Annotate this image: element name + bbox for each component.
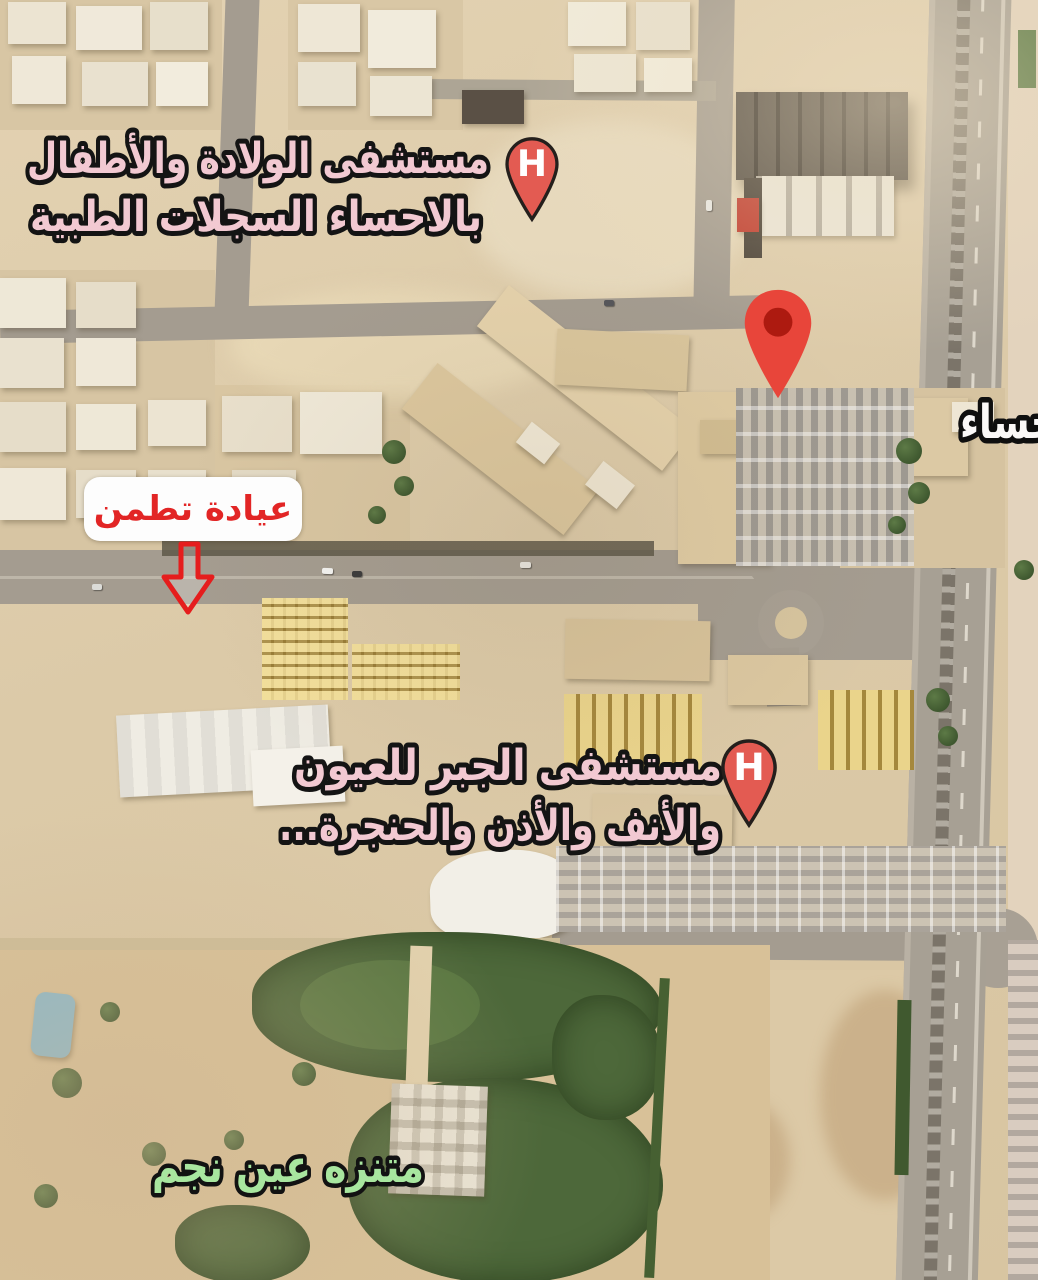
hospital-right-label-line3: الأحساء bbox=[960, 393, 1038, 450]
hospital-top-label: مستشفى الولادة والأطفال بالاحساء السجلات… bbox=[6, 118, 506, 258]
tree bbox=[938, 726, 958, 746]
tree bbox=[292, 1062, 316, 1086]
building bbox=[76, 6, 142, 50]
tree bbox=[926, 688, 950, 712]
car bbox=[604, 300, 614, 306]
building bbox=[370, 76, 432, 116]
pin-inner-dot bbox=[764, 308, 793, 337]
parking-strip bbox=[1008, 940, 1038, 1280]
hospital-jabr-label-line2: والأنف والأذن والحنجرة... bbox=[279, 799, 721, 851]
hospital-right-label: شفى الولادة ال بمحافظة الأحساء bbox=[798, 255, 1038, 465]
pin-letter: H bbox=[733, 745, 765, 789]
building bbox=[0, 402, 66, 452]
car bbox=[706, 200, 712, 211]
building bbox=[298, 62, 356, 106]
tree bbox=[382, 440, 406, 464]
rooftop-unit bbox=[585, 461, 635, 509]
park-label-text: متنزه عين نجم bbox=[152, 1140, 424, 1193]
road-shadow bbox=[162, 541, 654, 556]
building bbox=[368, 10, 436, 68]
highway bbox=[895, 0, 1012, 1280]
market-stalls bbox=[352, 644, 460, 700]
park-trees bbox=[175, 1205, 310, 1280]
building bbox=[756, 176, 894, 236]
satellite-map: مستشفى الولادة والأطفال بالاحساء السجلات… bbox=[0, 0, 1038, 1280]
tree bbox=[888, 516, 906, 534]
building bbox=[76, 338, 136, 386]
building bbox=[728, 655, 808, 705]
building bbox=[76, 282, 136, 328]
dark-warehouse-complex bbox=[736, 92, 908, 180]
building bbox=[8, 2, 66, 44]
building bbox=[0, 468, 66, 520]
hospital-building bbox=[555, 329, 690, 392]
hospital-pin-jabr[interactable]: H bbox=[720, 738, 778, 828]
building bbox=[0, 338, 64, 388]
pin-letter: H bbox=[517, 143, 547, 185]
building bbox=[568, 2, 626, 46]
car bbox=[352, 571, 362, 577]
tree bbox=[394, 476, 414, 496]
car bbox=[520, 562, 531, 568]
hospital-jabr-label: مستشفى الجبر للعيون والأنف والأذن والحنج… bbox=[268, 722, 788, 862]
building bbox=[574, 54, 636, 92]
building bbox=[76, 404, 136, 450]
building bbox=[300, 392, 382, 454]
pool bbox=[30, 991, 76, 1059]
building bbox=[156, 62, 208, 106]
red-shed bbox=[737, 198, 759, 232]
tree bbox=[34, 1184, 58, 1208]
hospital-pin-top[interactable]: H bbox=[504, 136, 560, 222]
building bbox=[564, 619, 710, 682]
park-lawn bbox=[300, 960, 480, 1050]
tree bbox=[908, 482, 930, 504]
building bbox=[222, 396, 292, 452]
tree bbox=[368, 506, 386, 524]
tree bbox=[1014, 560, 1034, 580]
clinic-label-box: عيادة تطمن bbox=[84, 477, 302, 541]
hospital-top-label-line1: مستشفى الولادة والأطفال bbox=[27, 132, 489, 184]
market-stalls bbox=[818, 690, 914, 770]
building bbox=[12, 56, 66, 104]
building bbox=[636, 2, 690, 50]
highway-edge-line bbox=[967, 0, 1006, 1280]
park-label: متنزه عين نجم bbox=[128, 1118, 458, 1213]
hospital-top-label-line2: بالاحساء السجلات الطبية bbox=[30, 192, 482, 242]
road bbox=[693, 0, 735, 324]
tree bbox=[52, 1068, 82, 1098]
car bbox=[92, 584, 102, 590]
market-stalls bbox=[262, 598, 348, 700]
building bbox=[0, 278, 66, 328]
arrow-shape bbox=[164, 544, 212, 612]
green-strip bbox=[1018, 30, 1036, 88]
building bbox=[644, 58, 692, 92]
car bbox=[322, 568, 333, 574]
park-trees bbox=[552, 995, 662, 1120]
building bbox=[82, 62, 148, 106]
building bbox=[150, 2, 208, 50]
clinic-label-text: عيادة تطمن bbox=[94, 489, 293, 529]
roundabout-island bbox=[775, 607, 807, 639]
building bbox=[298, 4, 360, 52]
clinic-arrow-down bbox=[160, 541, 216, 615]
building bbox=[148, 400, 206, 446]
tree bbox=[100, 1002, 120, 1022]
hospital-jabr-label-line1: مستشفى الجبر للعيون bbox=[294, 741, 722, 791]
